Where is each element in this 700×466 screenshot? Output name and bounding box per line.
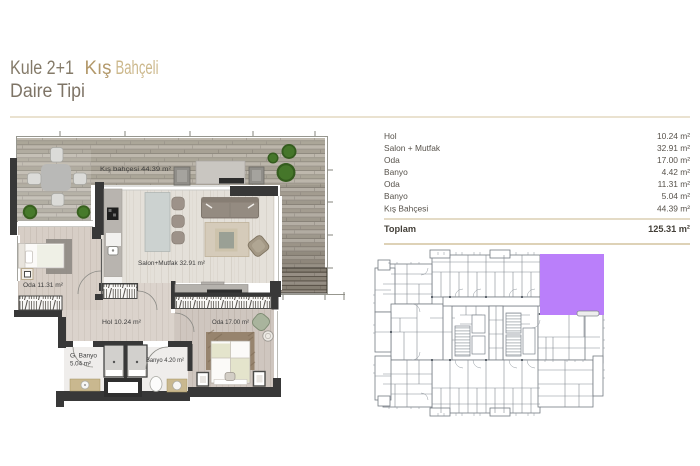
svg-text:Banyo 4.20 m²: Banyo 4.20 m² — [146, 357, 184, 364]
svg-text:Toplam: Toplam — [384, 224, 416, 234]
svg-text:Oda 17.00 m²: Oda 17.00 m² — [212, 319, 249, 326]
svg-text:Kış: Kış — [85, 58, 112, 79]
svg-text:125.31 m²: 125.31 m² — [648, 224, 690, 234]
svg-text:Banyo: Banyo — [384, 191, 408, 201]
svg-text:Kule 2+1: Kule 2+1 — [10, 58, 74, 79]
svg-text:Salon+Mutfak 32.91 m²: Salon+Mutfak 32.91 m² — [138, 260, 205, 267]
svg-text:44.39 m²: 44.39 m² — [657, 204, 690, 214]
svg-text:Kış bahçesi 44.39 m²: Kış bahçesi 44.39 m² — [100, 166, 171, 173]
svg-text:Banyo: Banyo — [384, 167, 408, 177]
svg-text:Hol 10.24 m²: Hol 10.24 m² — [102, 319, 141, 326]
svg-text:Bahçeli: Bahçeli — [116, 58, 159, 79]
svg-text:Daire Tipi: Daire Tipi — [10, 81, 85, 102]
svg-text:Kış Bahçesi: Kış Bahçesi — [384, 204, 428, 214]
svg-text:17.00 m²: 17.00 m² — [657, 155, 690, 165]
svg-text:4.42 m²: 4.42 m² — [662, 167, 691, 177]
svg-text:5.04 m²: 5.04 m² — [70, 361, 91, 368]
svg-text:Oda: Oda — [384, 179, 400, 189]
svg-text:Salon + Mutfak: Salon + Mutfak — [384, 143, 441, 153]
svg-text:G. Banyo: G. Banyo — [70, 353, 97, 360]
svg-text:Oda 11.31 m²: Oda 11.31 m² — [23, 282, 63, 289]
svg-text:11.31 m²: 11.31 m² — [658, 179, 691, 189]
svg-text:10.24 m²: 10.24 m² — [657, 131, 690, 141]
svg-text:Hol: Hol — [384, 131, 397, 141]
svg-text:32.91 m²: 32.91 m² — [657, 143, 690, 153]
svg-text:5.04 m²: 5.04 m² — [662, 191, 691, 201]
svg-text:Oda: Oda — [384, 155, 400, 165]
